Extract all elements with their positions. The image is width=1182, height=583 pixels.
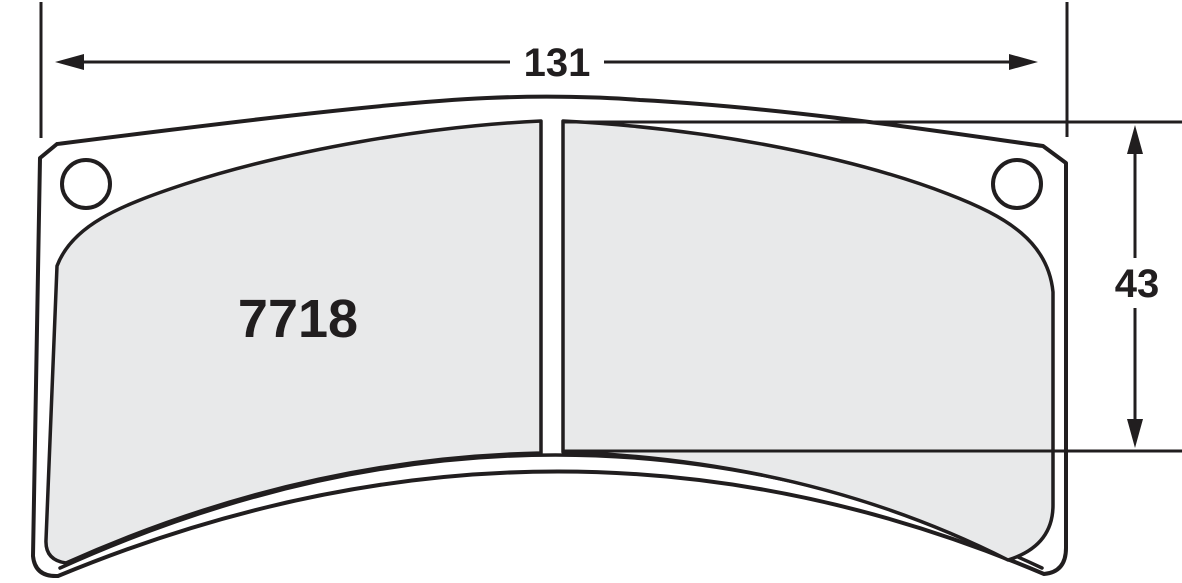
drawing-canvas: 131 43 7718 [0, 0, 1182, 583]
height-dimension-label: 43 [1115, 262, 1160, 306]
arrowhead-right-icon [1009, 54, 1038, 70]
arrowhead-down-icon [1127, 419, 1143, 448]
brake-pad-drawing: 131 43 7718 [0, 0, 1182, 583]
arrowhead-up-icon [1127, 125, 1143, 154]
mounting-hole-right [993, 160, 1041, 208]
width-dimension-label: 131 [524, 41, 591, 85]
arrowhead-left-icon [55, 54, 84, 70]
mounting-hole-left [62, 160, 110, 208]
part-number-label: 7718 [238, 289, 358, 349]
